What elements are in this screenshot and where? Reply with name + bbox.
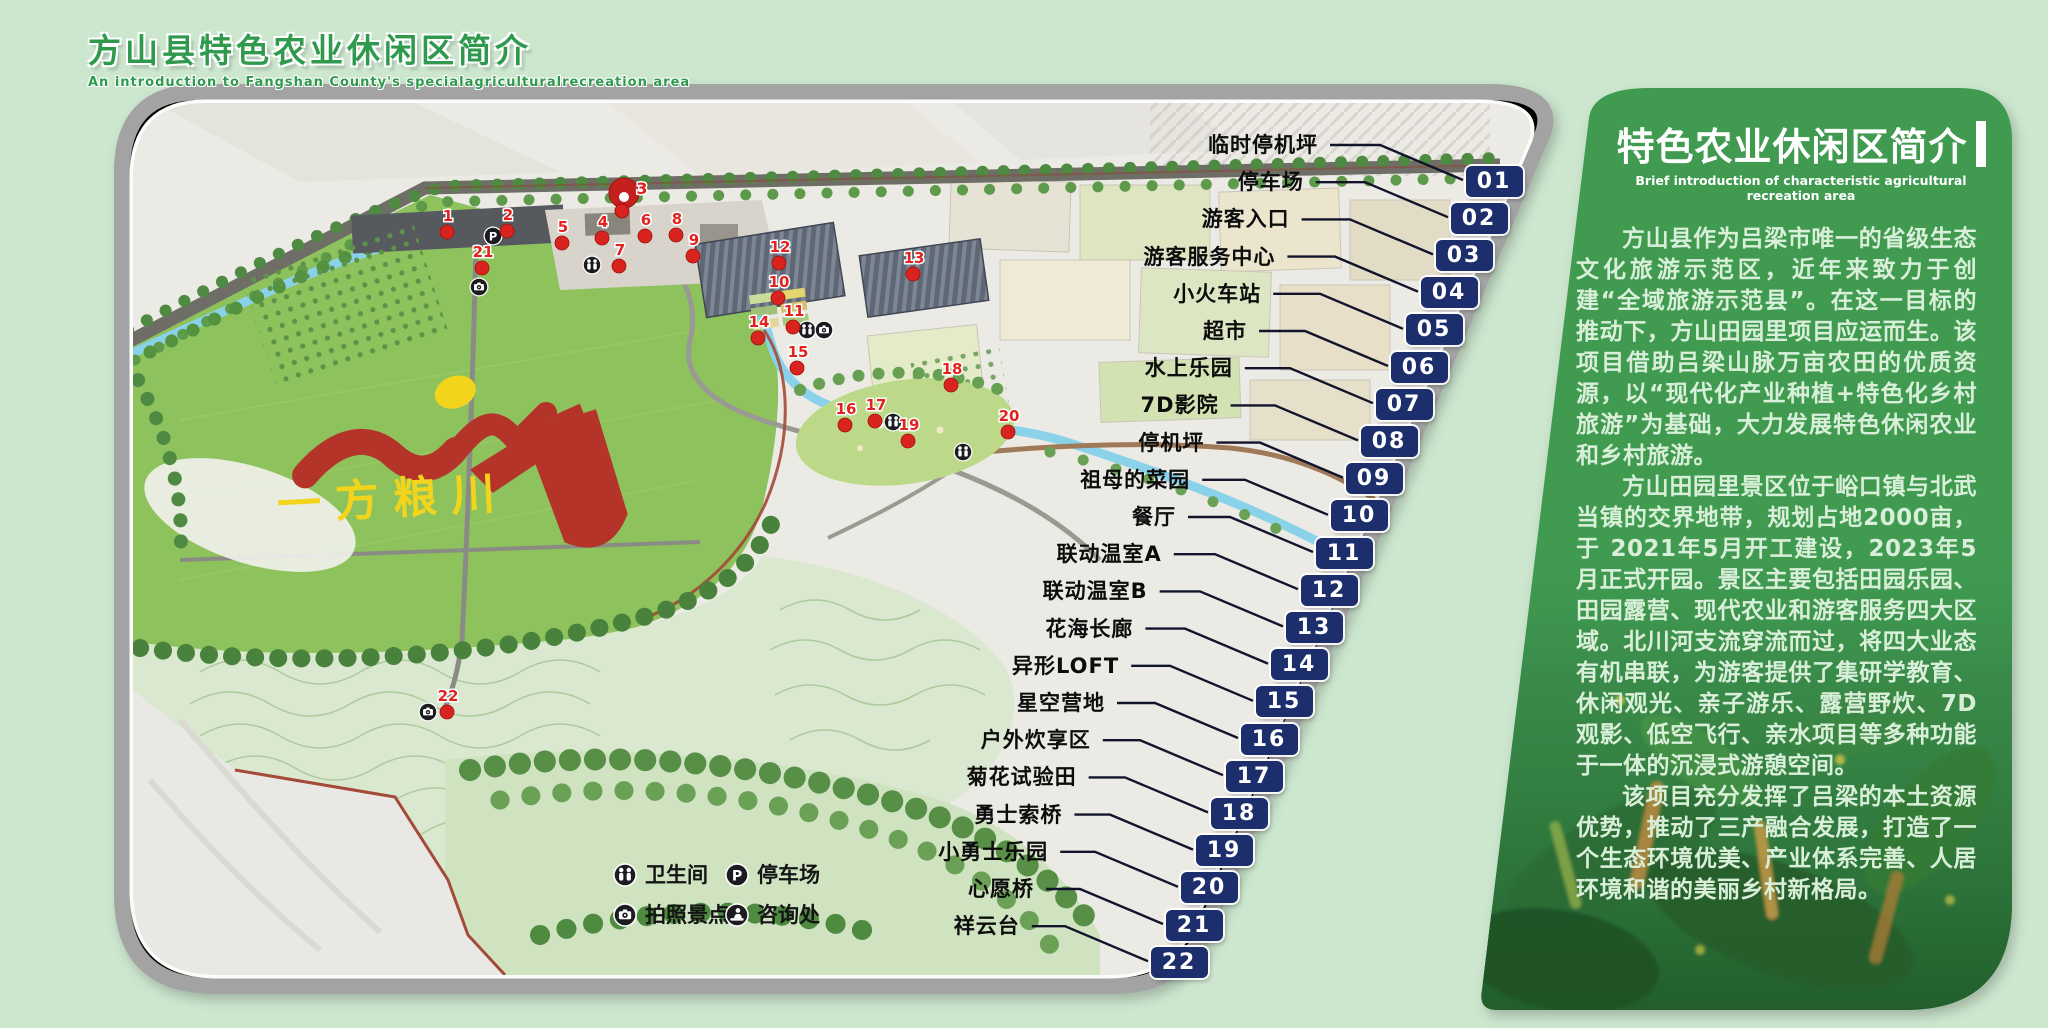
- svg-text:20: 20: [999, 407, 1020, 425]
- info-panel: [1453, 88, 2019, 1027]
- map-marker-4: 4: [595, 213, 609, 245]
- map-marker-8: 8: [669, 210, 683, 242]
- restroom-icon: [954, 443, 973, 462]
- svg-text:P: P: [489, 229, 497, 243]
- svg-text:10: 10: [769, 273, 790, 291]
- svg-text:2: 2: [503, 206, 513, 224]
- camera-icon: [815, 321, 834, 340]
- map-marker-6: 6: [638, 211, 652, 243]
- poster-graphic: 一方粮川 P 123456789101112131415161718192021…: [0, 0, 2048, 1028]
- map-marker-1: 1: [440, 207, 454, 239]
- svg-text:16: 16: [836, 400, 857, 418]
- svg-text:1: 1: [443, 207, 453, 225]
- map-marker-5: 5: [555, 218, 569, 250]
- map-marker-2: 2: [500, 206, 514, 238]
- svg-text:6: 6: [641, 211, 651, 229]
- svg-text:3: 3: [636, 179, 647, 198]
- svg-text:17: 17: [866, 396, 887, 414]
- map-marker-7: 7: [612, 241, 626, 273]
- svg-text:19: 19: [899, 416, 920, 434]
- map-marker-9: 9: [686, 231, 700, 263]
- svg-text:22: 22: [438, 687, 459, 705]
- svg-text:13: 13: [904, 249, 925, 267]
- svg-text:8: 8: [672, 210, 682, 228]
- svg-text:9: 9: [689, 231, 699, 249]
- svg-text:18: 18: [942, 360, 963, 378]
- camera-icon: [470, 278, 489, 297]
- poster-page: { "header": { "title": "方山县特色农业休闲区简介", "…: [0, 0, 2048, 1028]
- svg-text:15: 15: [788, 343, 809, 361]
- svg-text:21: 21: [473, 243, 494, 261]
- svg-text:7: 7: [615, 241, 625, 259]
- map-panel: 一方粮川 P 123456789101112131415161718192021…: [122, 92, 1562, 992]
- restroom-icon: [583, 256, 602, 275]
- svg-text:5: 5: [558, 218, 568, 236]
- svg-text:14: 14: [749, 313, 770, 331]
- camera-icon: [419, 703, 438, 722]
- vegetable-photo: [1453, 520, 2019, 1027]
- map-illustration: 一方粮川 P 123456789101112131415161718192021…: [122, 92, 1562, 992]
- svg-text:11: 11: [784, 302, 805, 320]
- svg-text:12: 12: [770, 238, 791, 256]
- restroom-icon: [798, 321, 817, 340]
- svg-text:4: 4: [598, 213, 608, 231]
